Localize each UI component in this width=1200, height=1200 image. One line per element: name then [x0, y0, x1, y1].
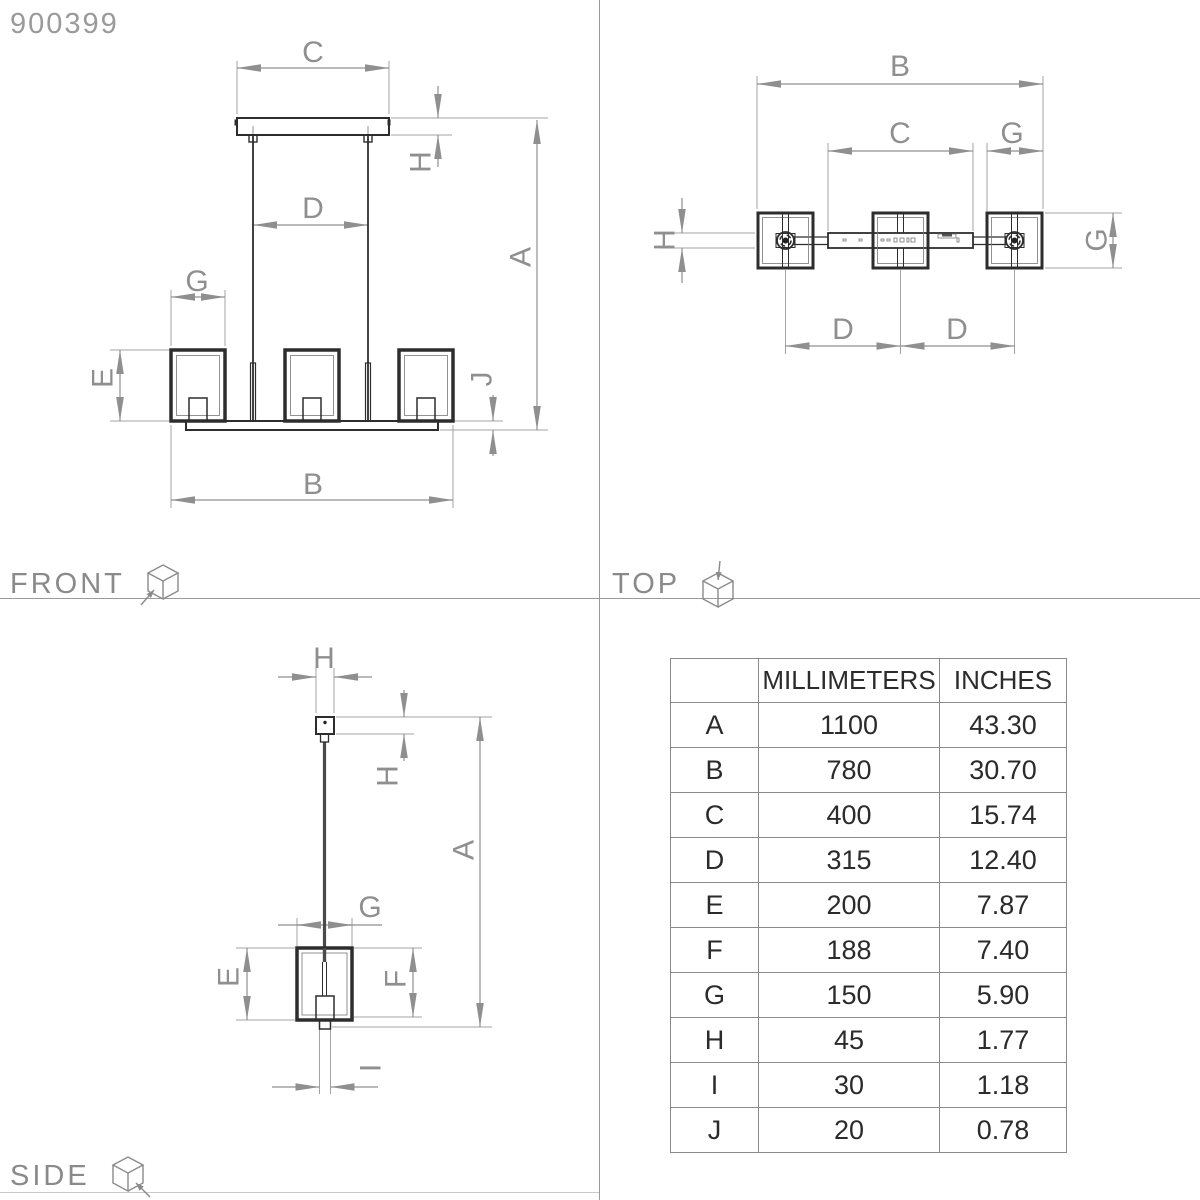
- dim-inches: 5.90: [940, 973, 1067, 1018]
- dim-mm: 20: [759, 1108, 940, 1153]
- dim-label: E: [671, 883, 759, 928]
- top-dim-label-g1: G: [1000, 117, 1023, 150]
- front-dim-label-e: E: [87, 368, 120, 388]
- dim-inches: 1.77: [940, 1018, 1067, 1063]
- top-view-drawing: B C G H G D D: [600, 0, 1200, 600]
- side-dim-label-g: G: [358, 891, 381, 924]
- dim-label: B: [671, 748, 759, 793]
- top-dim-label-c: C: [889, 117, 911, 150]
- front-view-title: FRONT: [10, 568, 125, 601]
- front-dim-label-a: A: [505, 247, 538, 267]
- dimension-table: MILLIMETERS INCHES A 1100 43.30 B 780 30…: [670, 658, 1067, 1153]
- table-row: G 150 5.90: [671, 973, 1067, 1018]
- dim-mm: 780: [759, 748, 940, 793]
- dim-mm: 315: [759, 838, 940, 883]
- dim-mm: 400: [759, 793, 940, 838]
- dim-label: A: [671, 703, 759, 748]
- top-view-cube-icon: [694, 560, 742, 608]
- table-row: H 45 1.77: [671, 1018, 1067, 1063]
- table-row: B 780 30.70: [671, 748, 1067, 793]
- dim-inches: 15.74: [940, 793, 1067, 838]
- dim-inches: 1.18: [940, 1063, 1067, 1108]
- front-dim-label-j: J: [466, 372, 499, 387]
- dim-label: J: [671, 1108, 759, 1153]
- dim-label: I: [671, 1063, 759, 1108]
- dim-label: C: [671, 793, 759, 838]
- front-view-cube-icon: [139, 560, 187, 608]
- front-view-drawing: C H D A G E J B: [0, 0, 600, 600]
- table-header-row: MILLIMETERS INCHES: [671, 659, 1067, 703]
- front-dim-label-c: C: [302, 36, 324, 69]
- table-row: E 200 7.87: [671, 883, 1067, 928]
- dim-inches: 43.30: [940, 703, 1067, 748]
- side-view-title: SIDE: [10, 1160, 90, 1193]
- dim-inches: 0.78: [940, 1108, 1067, 1153]
- dim-inches: 7.40: [940, 928, 1067, 973]
- table-row: D 315 12.40: [671, 838, 1067, 883]
- front-dim-label-g: G: [185, 265, 208, 298]
- top-dim-label-b: B: [890, 50, 910, 83]
- table-header-millimeters: MILLIMETERS: [759, 659, 940, 703]
- front-dim-label-h: H: [405, 151, 438, 173]
- dim-mm: 45: [759, 1018, 940, 1063]
- dim-label: G: [671, 973, 759, 1018]
- side-dim-label-e: E: [213, 967, 246, 987]
- table-row: C 400 15.74: [671, 793, 1067, 838]
- top-view-label: TOP: [612, 560, 742, 608]
- top-dim-label-h: H: [649, 229, 682, 251]
- side-view-cube-icon: [104, 1152, 152, 1200]
- dim-inches: 7.87: [940, 883, 1067, 928]
- table-row: J 20 0.78: [671, 1108, 1067, 1153]
- dim-inches: 30.70: [940, 748, 1067, 793]
- dim-mm: 1100: [759, 703, 940, 748]
- top-dim-label-d1: D: [832, 313, 854, 346]
- table-row: I 30 1.18: [671, 1063, 1067, 1108]
- dim-mm: 188: [759, 928, 940, 973]
- dim-mm: 200: [759, 883, 940, 928]
- table-row: F 188 7.40: [671, 928, 1067, 973]
- front-dim-label-d: D: [302, 192, 324, 225]
- side-view-drawing: H H A G E F I: [0, 600, 600, 1200]
- side-dim-label-h2: H: [372, 765, 405, 787]
- front-dim-label-b: B: [303, 468, 323, 501]
- top-dim-label-d2: D: [946, 313, 968, 346]
- dim-label: D: [671, 838, 759, 883]
- top-view-title: TOP: [612, 568, 680, 601]
- table-row: A 1100 43.30: [671, 703, 1067, 748]
- dim-mm: 30: [759, 1063, 940, 1108]
- dim-inches: 12.40: [940, 838, 1067, 883]
- dim-mm: 150: [759, 973, 940, 1018]
- side-view-label: SIDE: [10, 1152, 152, 1200]
- side-dim-label-h1: H: [313, 642, 335, 675]
- table-header-inches: INCHES: [940, 659, 1067, 703]
- table-header-dimension: [671, 659, 759, 703]
- side-dim-label-f: F: [380, 970, 413, 988]
- front-view-label: FRONT: [10, 560, 187, 608]
- side-dim-label-i: I: [355, 1064, 388, 1072]
- dim-label: H: [671, 1018, 759, 1063]
- top-dim-label-g2: G: [1081, 228, 1114, 251]
- side-dim-label-a: A: [448, 840, 481, 860]
- dim-label: F: [671, 928, 759, 973]
